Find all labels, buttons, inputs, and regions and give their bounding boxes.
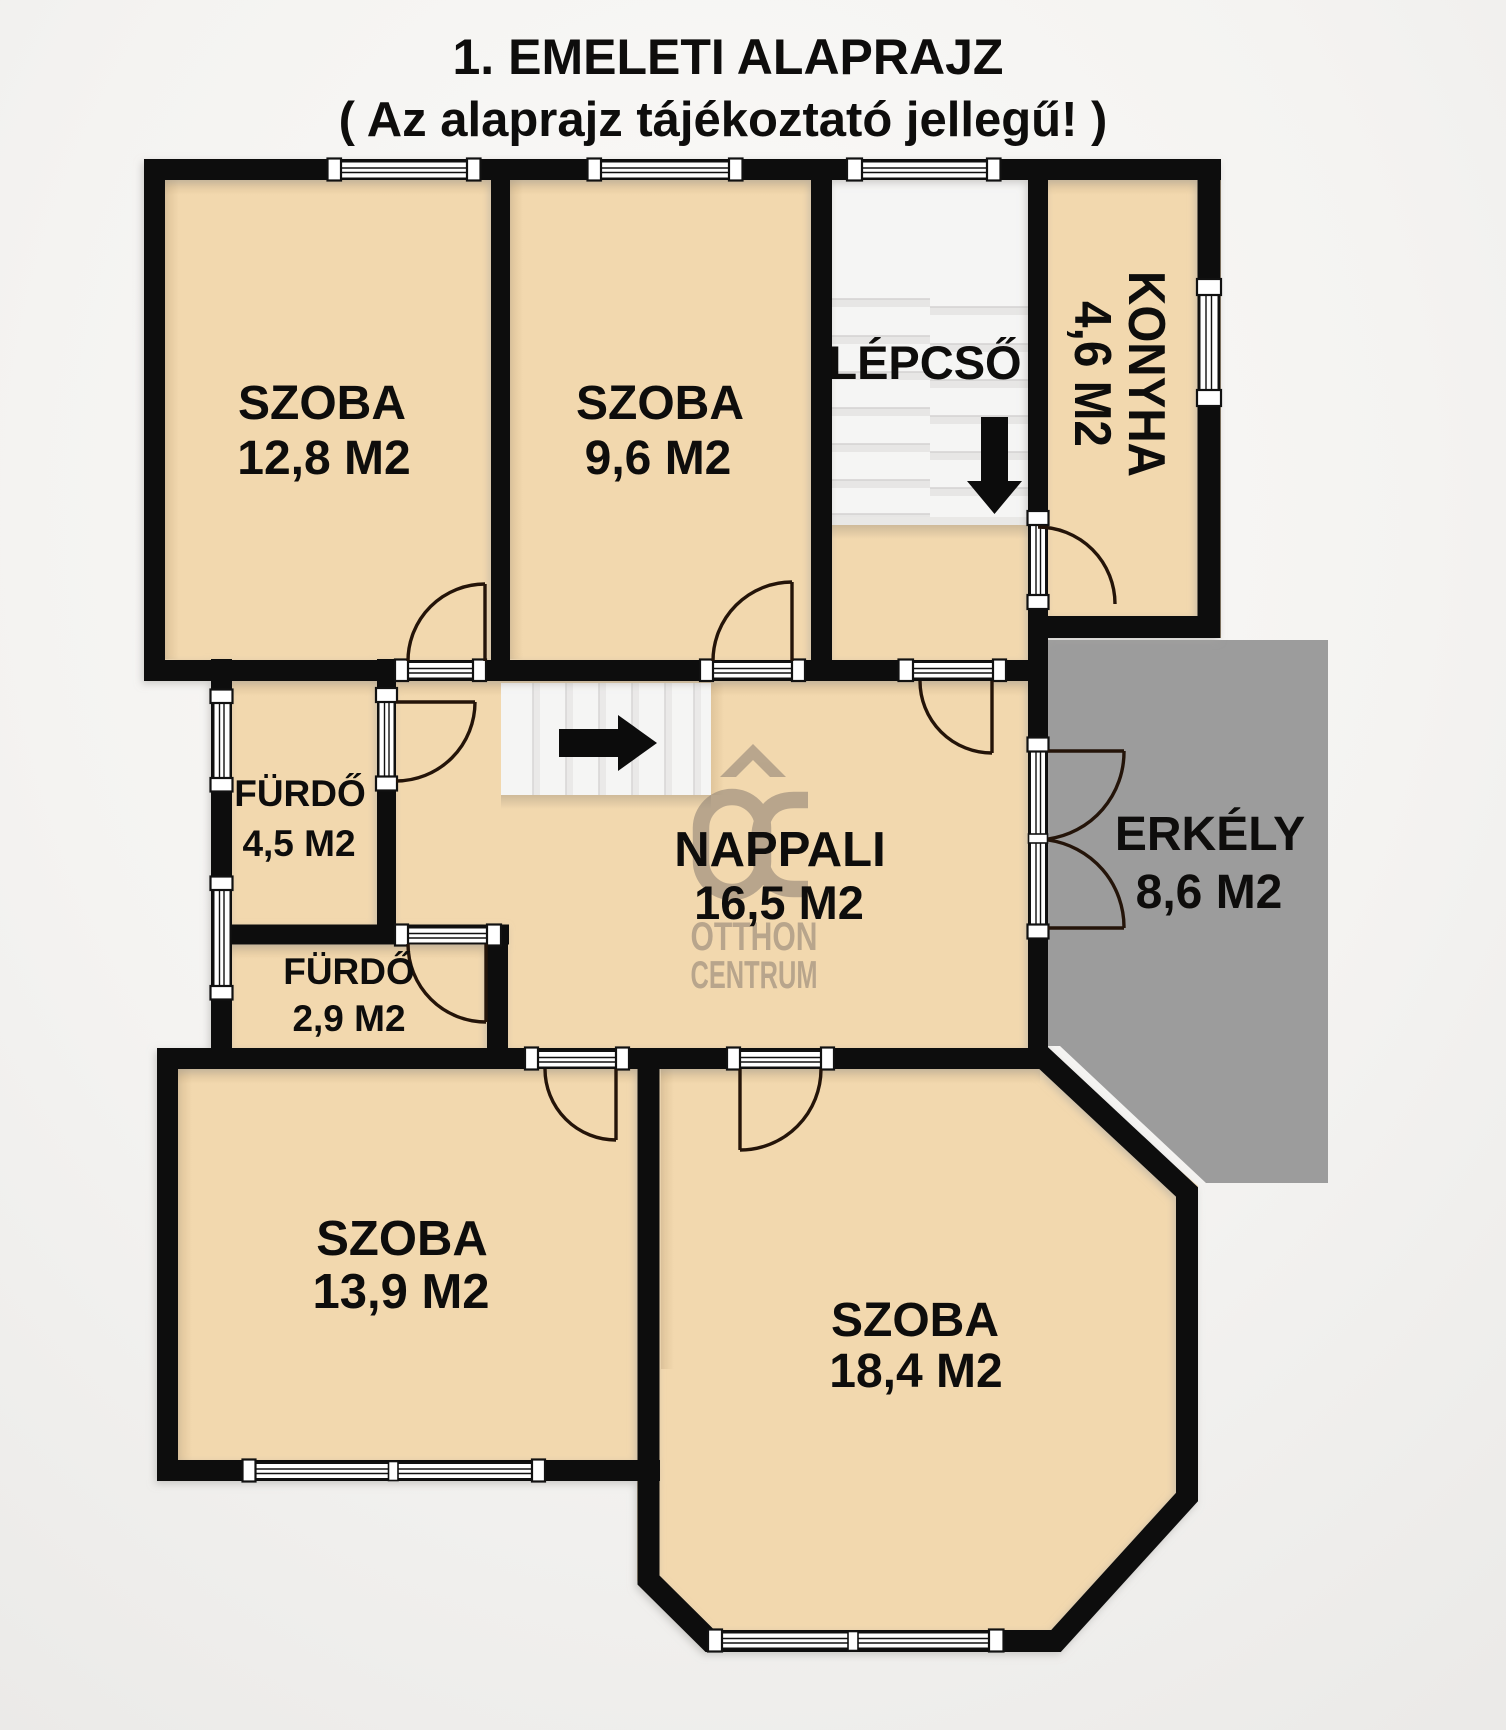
svg-text:18,4 M2: 18,4 M2 bbox=[829, 1345, 1002, 1398]
svg-text:FÜRDŐ: FÜRDŐ bbox=[234, 772, 366, 814]
svg-text:16,5 M2: 16,5 M2 bbox=[694, 876, 864, 929]
svg-text:ERKÉLY: ERKÉLY bbox=[1115, 807, 1305, 861]
svg-text:CENTRUM: CENTRUM bbox=[691, 954, 818, 997]
svg-text:4,6 M2: 4,6 M2 bbox=[1063, 301, 1121, 447]
svg-text:( Az alaprajz tájékoztató jell: ( Az alaprajz tájékoztató jellegű! ) bbox=[339, 93, 1108, 147]
svg-text:1. EMELETI ALAPRAJZ: 1. EMELETI ALAPRAJZ bbox=[453, 29, 1004, 85]
svg-text:9,6 M2: 9,6 M2 bbox=[585, 432, 732, 485]
svg-text:8,6 M2: 8,6 M2 bbox=[1136, 866, 1283, 919]
svg-text:13,9 M2: 13,9 M2 bbox=[312, 1265, 489, 1319]
svg-text:SZOBA: SZOBA bbox=[576, 377, 744, 430]
svg-text:SZOBA: SZOBA bbox=[831, 1294, 999, 1347]
svg-text:LÉPCSŐ: LÉPCSŐ bbox=[828, 336, 1021, 389]
svg-text:NAPPALI: NAPPALI bbox=[674, 823, 885, 877]
svg-text:KONYHA: KONYHA bbox=[1117, 271, 1175, 477]
svg-text:12,8 M2: 12,8 M2 bbox=[237, 432, 410, 485]
svg-text:2,9 M2: 2,9 M2 bbox=[292, 998, 405, 1039]
svg-text:4,5 M2: 4,5 M2 bbox=[242, 823, 355, 864]
svg-text:SZOBA: SZOBA bbox=[316, 1212, 488, 1266]
svg-text:SZOBA: SZOBA bbox=[238, 377, 406, 430]
svg-text:FÜRDŐ: FÜRDŐ bbox=[283, 950, 415, 992]
